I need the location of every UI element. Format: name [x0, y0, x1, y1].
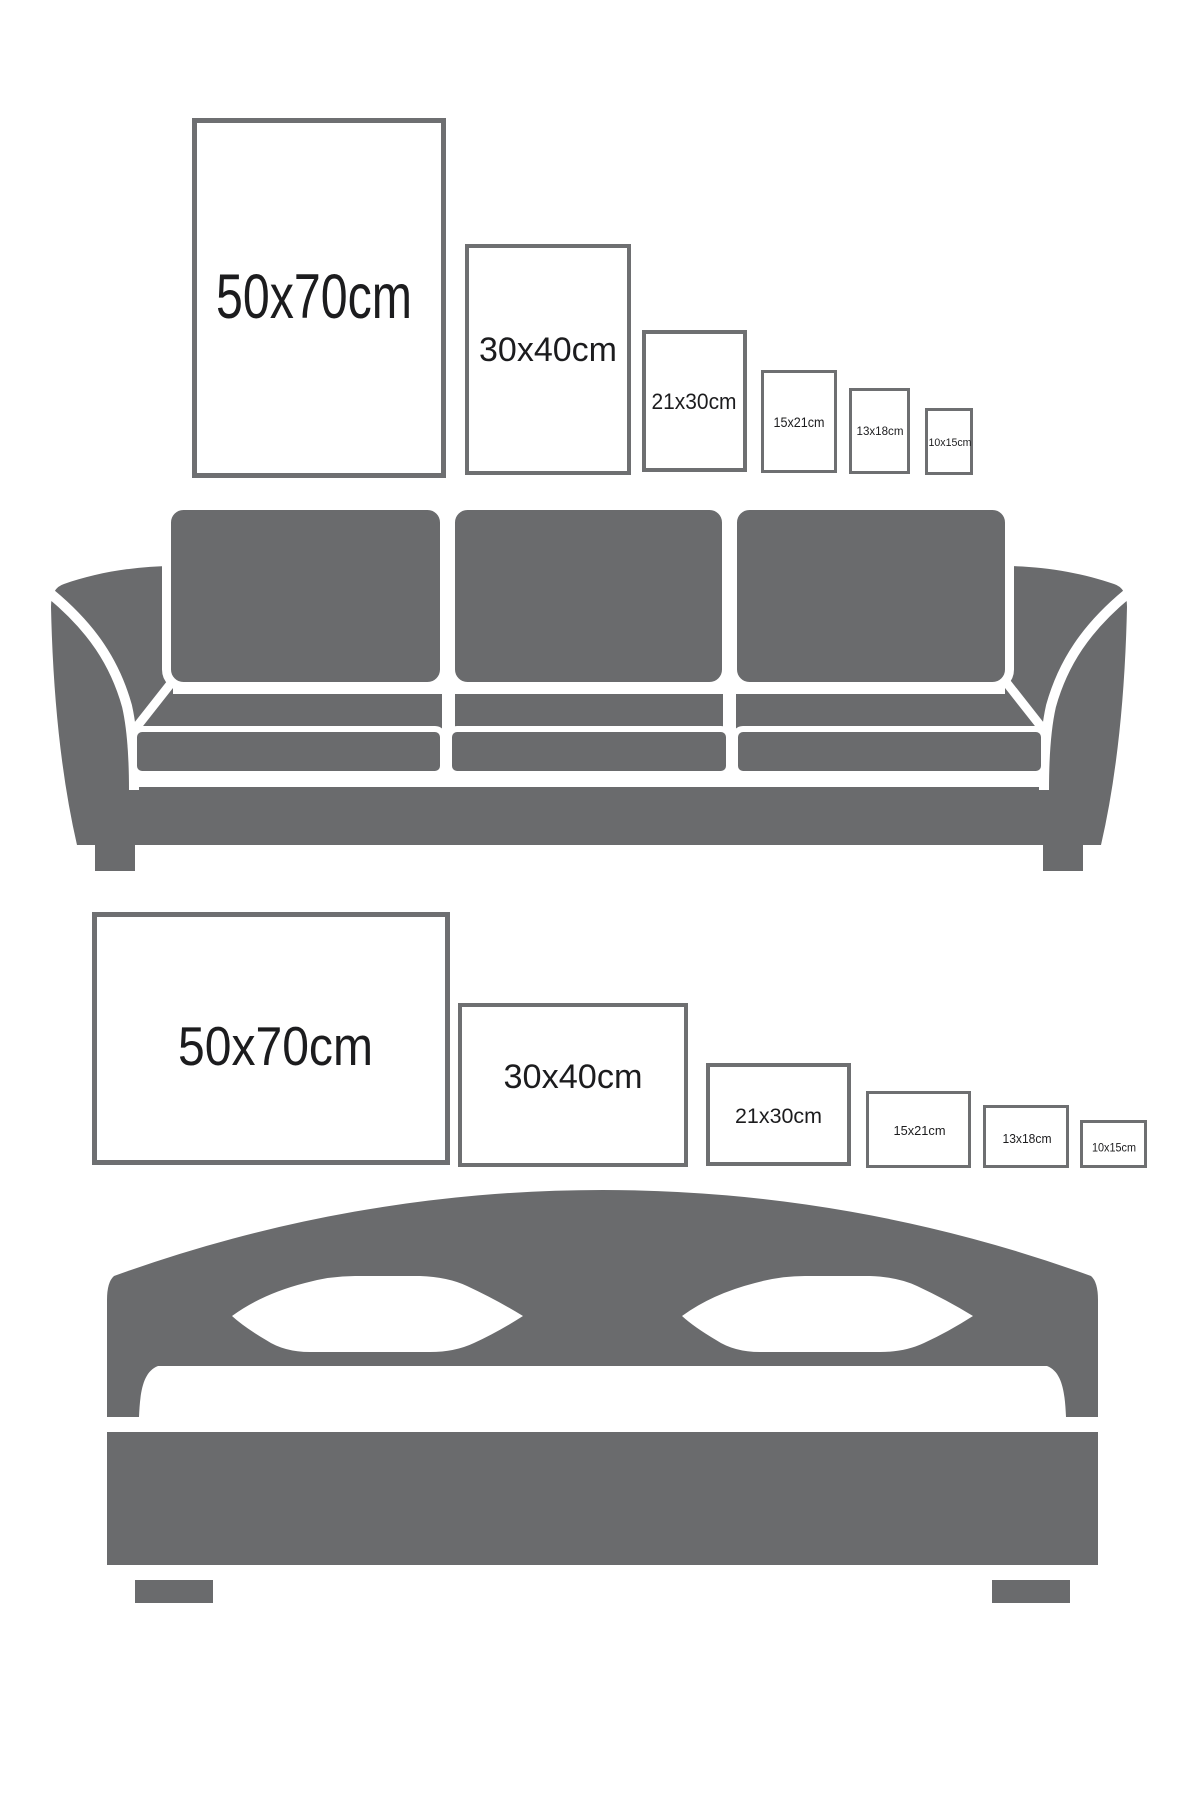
svg-text:13x18cm: 13x18cm	[1003, 1132, 1052, 1146]
svg-text:30x40cm: 30x40cm	[504, 1058, 643, 1096]
svg-text:15x21cm: 15x21cm	[894, 1123, 946, 1138]
svg-text:21x30cm: 21x30cm	[735, 1104, 822, 1128]
svg-text:50x70cm: 50x70cm	[216, 262, 412, 332]
svg-text:50x70cm: 50x70cm	[178, 1015, 373, 1077]
svg-text:30x40cm: 30x40cm	[479, 331, 617, 369]
svg-text:13x18cm: 13x18cm	[857, 424, 904, 438]
svg-text:15x21cm: 15x21cm	[774, 415, 825, 430]
svg-text:10x15cm: 10x15cm	[929, 437, 972, 449]
svg-text:10x15cm: 10x15cm	[1092, 1143, 1136, 1155]
svg-text:21x30cm: 21x30cm	[652, 389, 737, 414]
